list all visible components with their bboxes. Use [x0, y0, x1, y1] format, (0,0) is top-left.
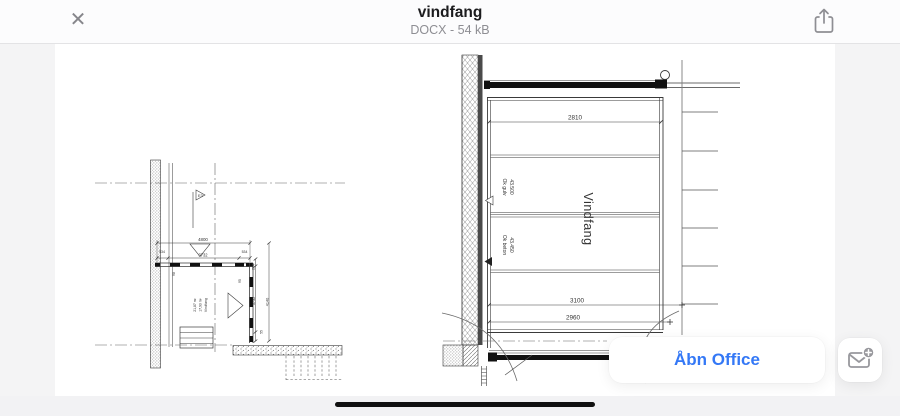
document-title: vindfang [0, 4, 900, 22]
floor-level-value: 43.500 [508, 179, 514, 195]
dim-offset-left-label: 534 [159, 250, 165, 254]
document-subtitle: DOCX - 54 kB [0, 23, 900, 37]
mail-share-button[interactable] [838, 338, 882, 382]
dim-right-total-label: 4140 [265, 298, 269, 306]
room-area2-label: 21,87 m² [193, 297, 197, 311]
section-marker-label: E3 [198, 193, 204, 198]
dim-total-label: 4800 [198, 237, 208, 242]
dim-wall-right-label: 95 [238, 279, 242, 283]
mail-plus-icon [838, 338, 882, 382]
share-icon [812, 7, 836, 35]
dim-wall-left-label: 98 [172, 272, 176, 276]
home-indicator[interactable] [335, 402, 595, 407]
dim-offset-right-label: 534 [242, 250, 248, 254]
open-office-button[interactable]: Åbn Office [609, 337, 825, 383]
room-name-label-left: Vindfang [204, 298, 208, 312]
header-titles: vindfang DOCX - 54 kB [0, 4, 900, 37]
dim-inner-label: 3732 [198, 252, 208, 257]
preview-header: ✕ vindfang DOCX - 54 kB [0, 0, 900, 44]
floor-level-label: Ok gulv [501, 179, 507, 196]
dim-bottom-total-label: 3100 [570, 298, 585, 305]
concrete-level-label: Ok beton [501, 235, 507, 256]
dim-bottom-small-label: 55 [260, 330, 264, 334]
concrete-level-value: 43.450 [508, 237, 514, 253]
left-floor-plan: E3 4800 534 3732 534 [95, 160, 345, 380]
dim-right-inner-label: 3732 [252, 297, 256, 305]
room-name-label-right: Vindfang [581, 192, 595, 245]
share-button[interactable] [810, 7, 838, 37]
room-area1-label: 17,93 m² [199, 297, 203, 311]
dim-right-top-label: 204 [252, 264, 256, 270]
dim-top-label: 2810 [568, 115, 583, 122]
dim-bottom-inner-label: 2960 [566, 315, 581, 322]
